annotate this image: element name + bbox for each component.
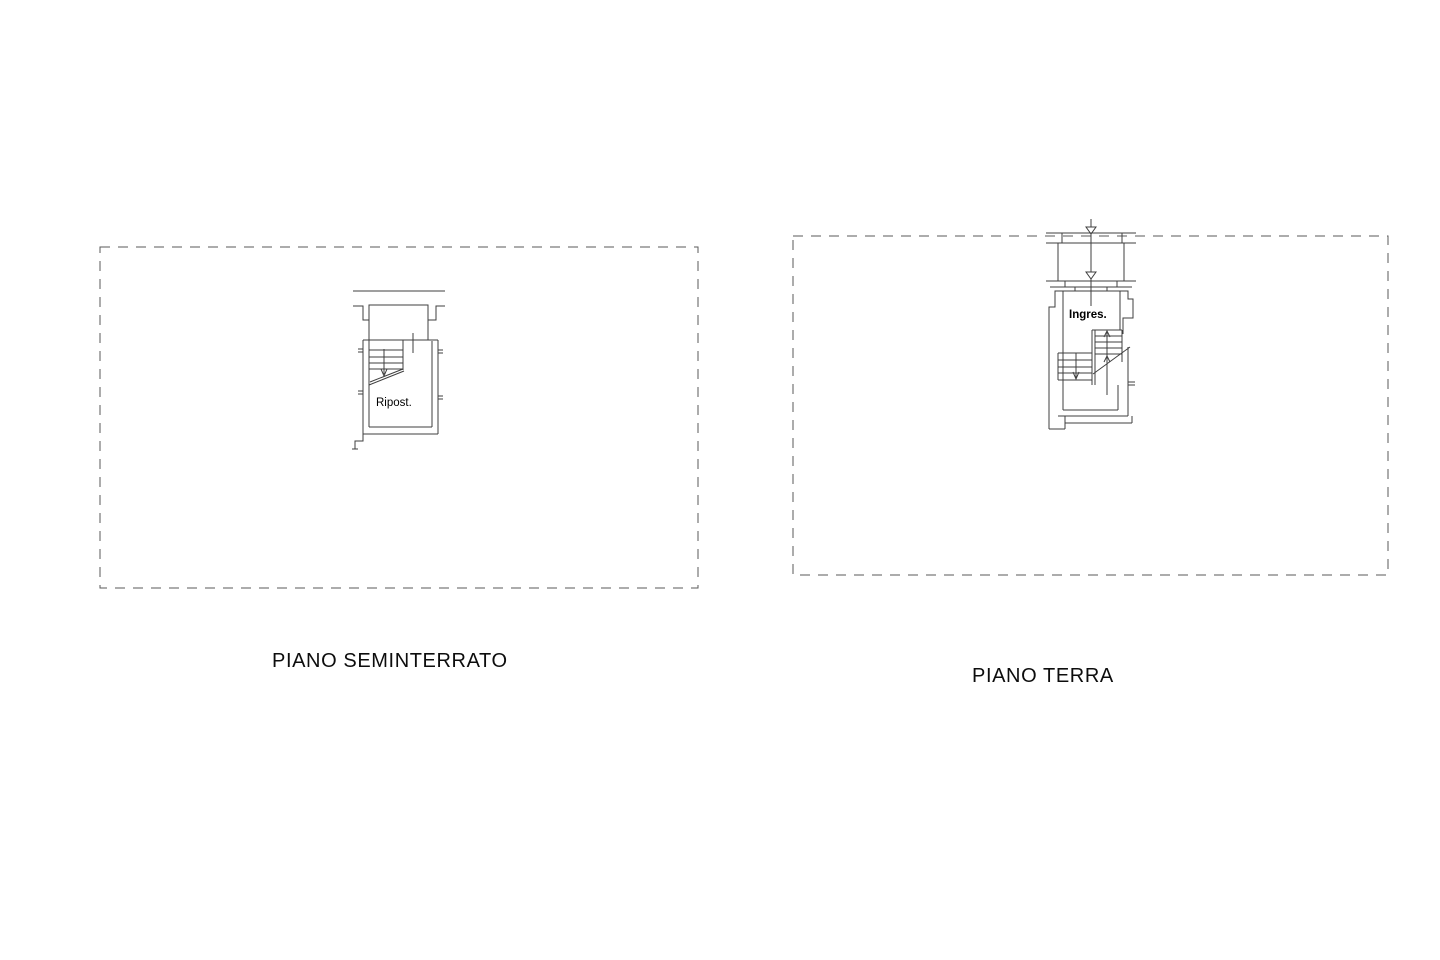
floor-title-terra: PIANO TERRA bbox=[972, 664, 1114, 688]
floor-title-seminterrato: PIANO SEMINTERRATO bbox=[272, 649, 508, 673]
walls-seminterrato bbox=[352, 291, 445, 449]
plan-drawing-svg bbox=[0, 0, 1440, 960]
boundary-seminterrato bbox=[100, 247, 698, 588]
stair-up-arrow bbox=[1104, 331, 1110, 395]
stair-down-arrow-terra bbox=[1073, 353, 1079, 379]
room-label-ripostiglio: Ripost. bbox=[376, 396, 412, 410]
stairs-seminterrato bbox=[369, 340, 404, 385]
plan-seminterrato bbox=[352, 291, 445, 449]
plan-terra bbox=[1046, 219, 1136, 429]
entry-arrow-mid bbox=[1086, 252, 1096, 306]
stairs-terra bbox=[1058, 330, 1130, 395]
room-label-ingresso: Ingres. bbox=[1069, 308, 1107, 322]
floor-plan-sheet: Ripost. Ingres. PIANO SEMINTERRATO PIANO… bbox=[0, 0, 1440, 960]
